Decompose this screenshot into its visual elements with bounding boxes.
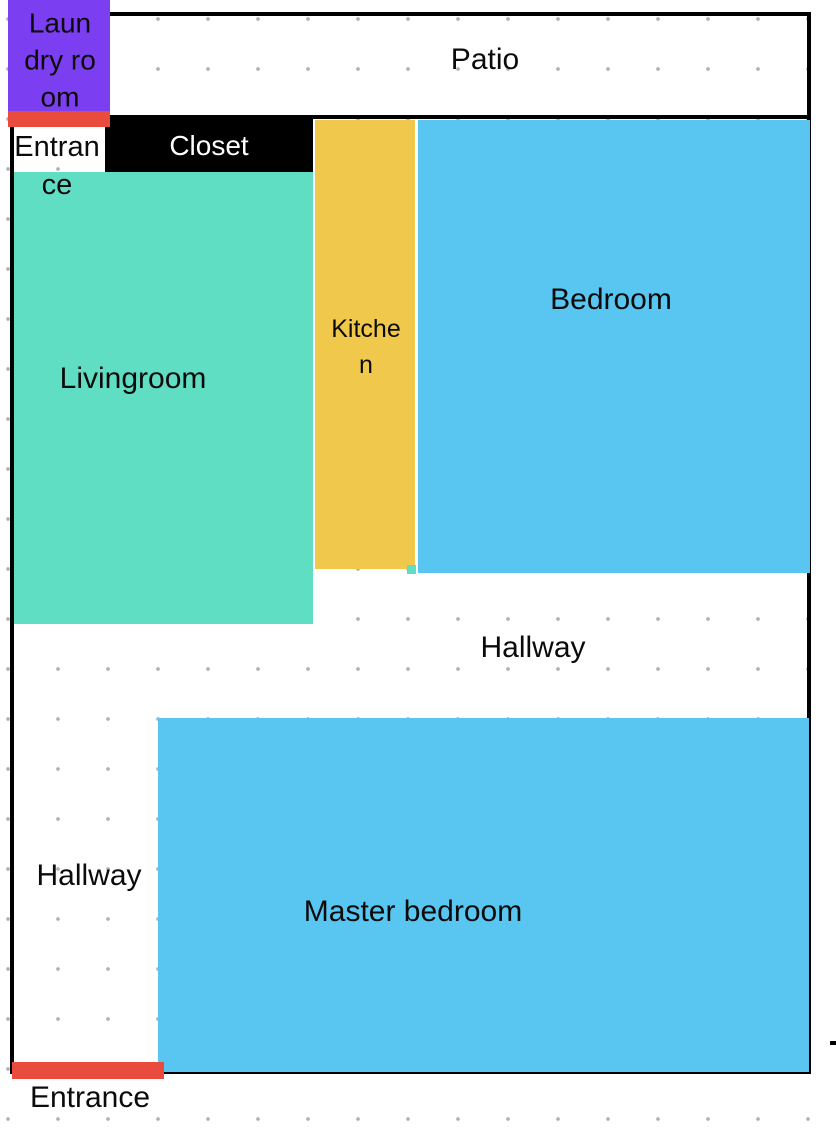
room-label-livingroom: Livingroom [60, 360, 207, 398]
room-label-entrance-bottom: Entrance [30, 1079, 150, 1117]
room-label-closet: Closet [169, 127, 248, 165]
room-bedroom [418, 120, 810, 573]
room-label-master-bedroom: Master bedroom [304, 893, 522, 931]
room-label-hallway-upper: Hallway [480, 629, 585, 667]
room-label-bedroom: Bedroom [550, 281, 672, 319]
room-livingroom [14, 172, 313, 624]
right-edge-tick [830, 1041, 836, 1045]
room-label-patio: Patio [451, 41, 519, 79]
room-label-entrance-top: Entrance [11, 128, 103, 204]
floorplan-canvas: Laundry room Patio Entrance Closet Livin… [0, 0, 836, 1130]
livingroom-corner-fragment [407, 565, 416, 574]
room-label-kitchen: Kitchen [331, 311, 401, 383]
room-label-hallway-lower: Hallway [36, 857, 141, 895]
entrance-door-marker-bottom [12, 1062, 164, 1079]
room-label-laundry: Laundry room [24, 5, 96, 116]
